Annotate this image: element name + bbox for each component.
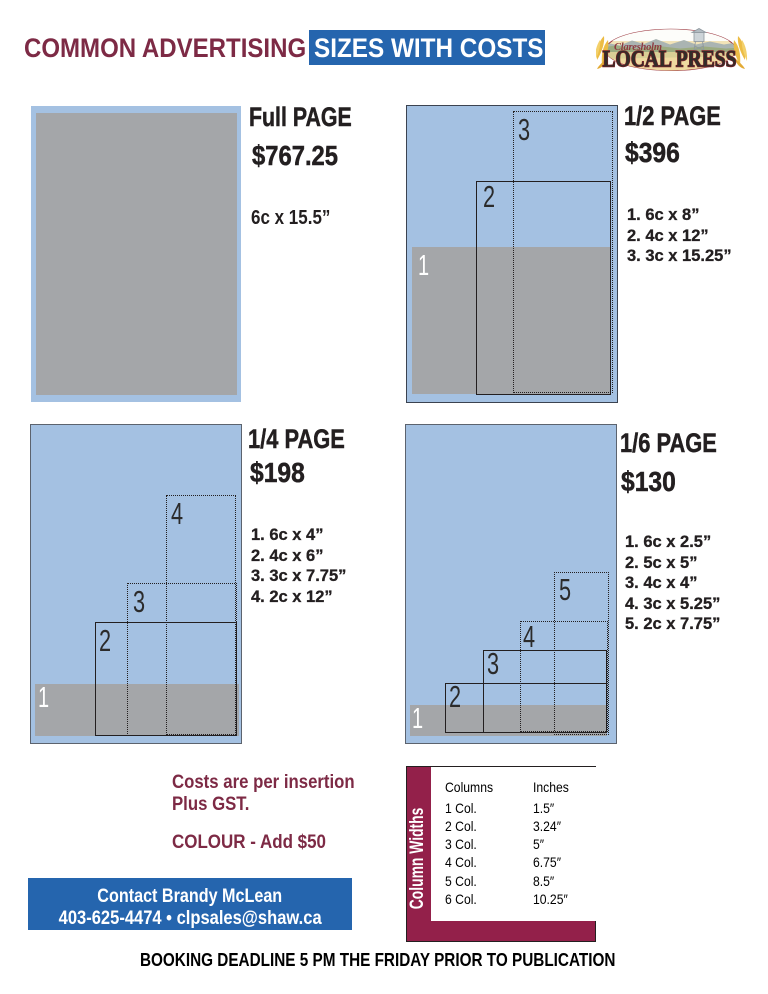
- svg-text:LOCAL PRESS: LOCAL PRESS: [603, 47, 737, 72]
